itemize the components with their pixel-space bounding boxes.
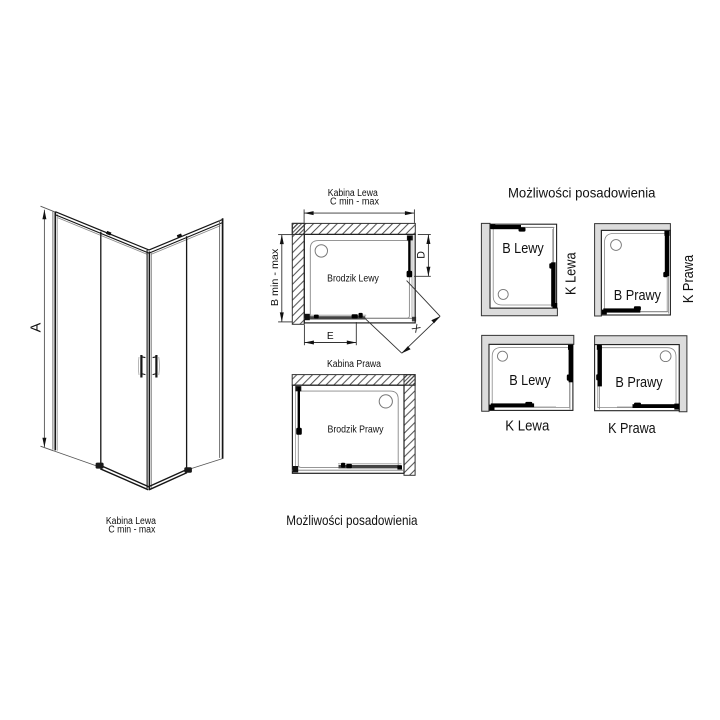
svg-text:D: D [415, 251, 427, 259]
svg-text:E: E [327, 331, 334, 342]
svg-text:C min - max: C min - max [108, 525, 155, 536]
svg-text:K Lewa: K Lewa [564, 252, 580, 295]
svg-text:B Lewy: B Lewy [509, 372, 551, 389]
svg-text:Kabina Prawa: Kabina Prawa [327, 359, 382, 370]
svg-text:Brodzik Prawy: Brodzik Prawy [328, 424, 385, 435]
svg-text:Możliwości posadowienia: Możliwości posadowienia [508, 185, 656, 201]
svg-text:A: A [28, 322, 44, 332]
svg-text:B min - max: B min - max [270, 248, 281, 306]
svg-text:B Prawy: B Prawy [615, 374, 663, 391]
svg-text:K Prawa: K Prawa [681, 254, 697, 303]
svg-text:Brodzik Lewy: Brodzik Lewy [327, 274, 379, 285]
svg-text:K Prawa: K Prawa [608, 421, 656, 437]
svg-text:B Prawy: B Prawy [614, 287, 662, 304]
svg-text:C min - max: C min - max [330, 196, 379, 207]
svg-text:Możliwości posadowienia: Możliwości posadowienia [286, 512, 417, 528]
svg-text:B Lewy: B Lewy [502, 240, 544, 257]
svg-text:K Lewa: K Lewa [505, 419, 550, 435]
